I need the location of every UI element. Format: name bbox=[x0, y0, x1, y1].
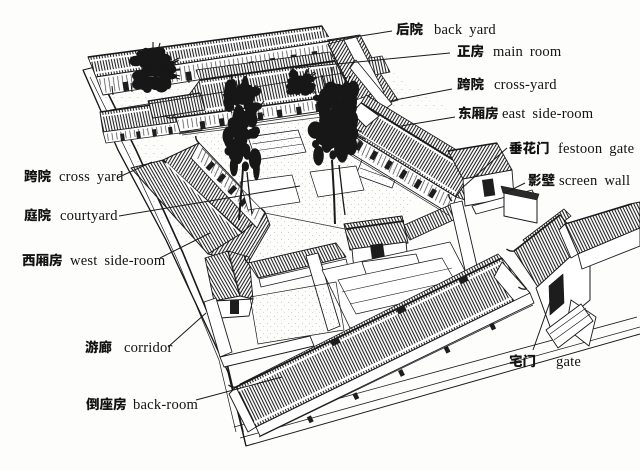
svg-text:back yard: back yard bbox=[434, 22, 496, 38]
svg-text:west side-room: west side-room bbox=[70, 253, 166, 269]
svg-text:courtyard: courtyard bbox=[60, 208, 118, 224]
svg-text:screen wall: screen wall bbox=[559, 173, 630, 189]
svg-text:east side-room: east side-room bbox=[502, 106, 594, 122]
svg-text:festoon gate: festoon gate bbox=[558, 141, 634, 157]
svg-text:cross yard: cross yard bbox=[59, 169, 124, 185]
svg-text:gate: gate bbox=[556, 354, 581, 370]
svg-text:back-room: back-room bbox=[133, 397, 198, 413]
svg-text:cross-yard: cross-yard bbox=[494, 77, 557, 93]
svg-text:corridor: corridor bbox=[124, 340, 173, 356]
svg-text:main room: main room bbox=[493, 44, 562, 60]
